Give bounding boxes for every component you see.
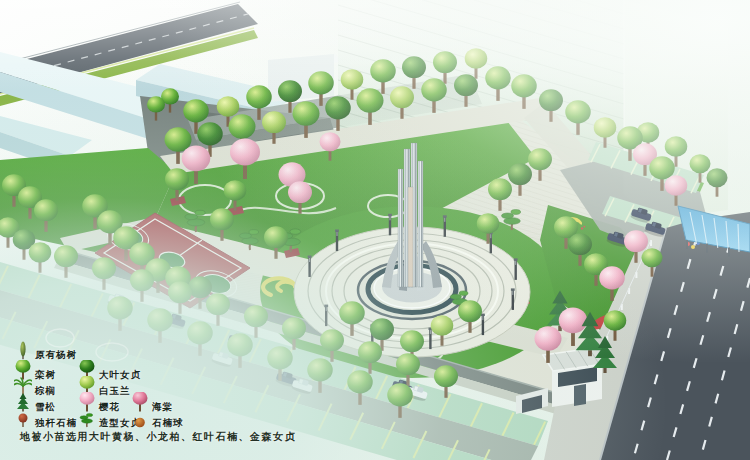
- ground-cover-note: 地被小苗选用大叶黄杨、小龙柏、红叶石楠、金森女贞: [20, 430, 296, 444]
- legend-label: 石楠球: [152, 417, 184, 428]
- legend-item: 造型女贞: [78, 408, 131, 428]
- landscape-plan-rendering: 地被小苗选用大叶黄杨、小龙柏、红叶石楠、金森女贞 原有杨树栾树大叶女贞棕榈白玉兰…: [0, 0, 750, 460]
- legend-row: 独杆石楠造型女贞石楠球: [14, 408, 184, 428]
- existing-poplar-icon: [14, 340, 32, 360]
- shaped-privet-icon: [78, 408, 96, 428]
- legend-label: 原有杨树: [35, 349, 77, 360]
- legend-row: 原有杨树: [14, 340, 77, 360]
- legend-item: 原有杨树: [14, 340, 77, 360]
- legend-item: 石楠球: [131, 408, 184, 428]
- legend-label: 独杆石楠: [35, 417, 77, 428]
- photinia-ball-icon: [131, 408, 149, 428]
- single-stem-photinia-icon: [14, 408, 32, 428]
- legend-item: 独杆石楠: [14, 408, 78, 428]
